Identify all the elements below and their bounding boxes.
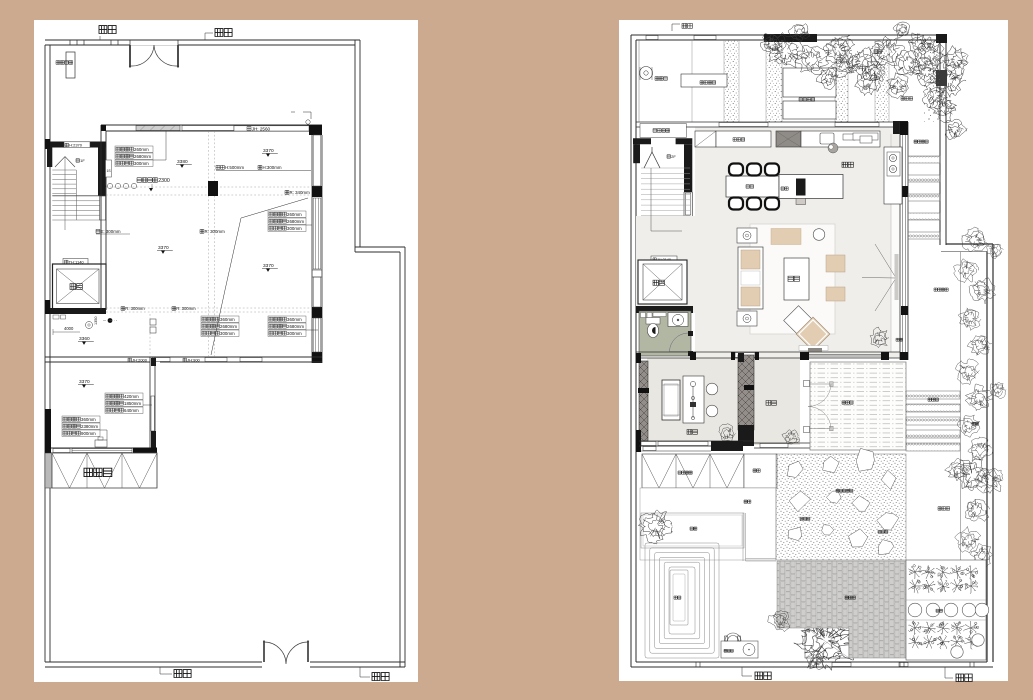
svg-text:4000: 4000: [64, 326, 74, 331]
svg-text:H:300mm: H:300mm: [263, 165, 282, 170]
svg-text:2380mm: 2380mm: [81, 424, 98, 429]
svg-text:2F: 2F: [671, 154, 676, 159]
svg-text:R: 300mm: R: 300mm: [205, 229, 226, 234]
svg-text:900mm: 900mm: [81, 431, 96, 436]
svg-text:H:2370: H:2370: [69, 143, 83, 148]
svg-text:300mm: 300mm: [220, 331, 235, 336]
svg-text:300mm: 300mm: [287, 331, 302, 336]
svg-text:360mm: 360mm: [81, 417, 96, 422]
svg-text:2680mm: 2680mm: [220, 324, 237, 329]
svg-text:E: 300mm: E: 300mm: [101, 229, 121, 234]
svg-text:1350: 1350: [94, 317, 98, 325]
svg-text:R: 300mm: R: 300mm: [125, 306, 145, 311]
svg-text:2680mm: 2680mm: [287, 219, 304, 224]
svg-text:3370: 3370: [263, 148, 274, 154]
svg-text:2300: 2300: [158, 178, 170, 184]
svg-text:3370: 3370: [79, 379, 90, 385]
svg-text:JH:2000: JH:2000: [132, 358, 148, 363]
svg-text:360mm: 360mm: [287, 317, 302, 322]
svg-text:260mm: 260mm: [134, 147, 149, 152]
svg-text:1850mm: 1850mm: [124, 401, 141, 406]
svg-text:2680mm: 2680mm: [287, 324, 304, 329]
svg-text:260mm: 260mm: [287, 212, 302, 217]
svg-text:300mm: 300mm: [134, 161, 149, 166]
svg-text:300mm: 300mm: [287, 226, 302, 231]
svg-text:3380: 3380: [177, 159, 188, 165]
svg-text:640mm: 640mm: [124, 408, 139, 413]
svg-text:R: 300mm: R: 300mm: [176, 306, 196, 311]
svg-text:360mm: 360mm: [220, 317, 235, 322]
svg-text:3360: 3360: [79, 336, 90, 342]
svg-text:1S: 1S: [107, 169, 112, 173]
svg-text:3370: 3370: [158, 245, 169, 251]
svg-text:1F: 1F: [80, 158, 85, 163]
svg-text:2680mm: 2680mm: [134, 154, 151, 159]
svg-text:JH: 2560: JH: 2560: [252, 126, 271, 131]
svg-text:420mm: 420mm: [124, 394, 139, 399]
svg-text:JH:900: JH:900: [187, 358, 200, 363]
svg-text:R: 340mm: R: 340mm: [290, 190, 311, 195]
svg-text:3370: 3370: [263, 263, 274, 269]
svg-text:H:500mm: H:500mm: [225, 165, 244, 170]
